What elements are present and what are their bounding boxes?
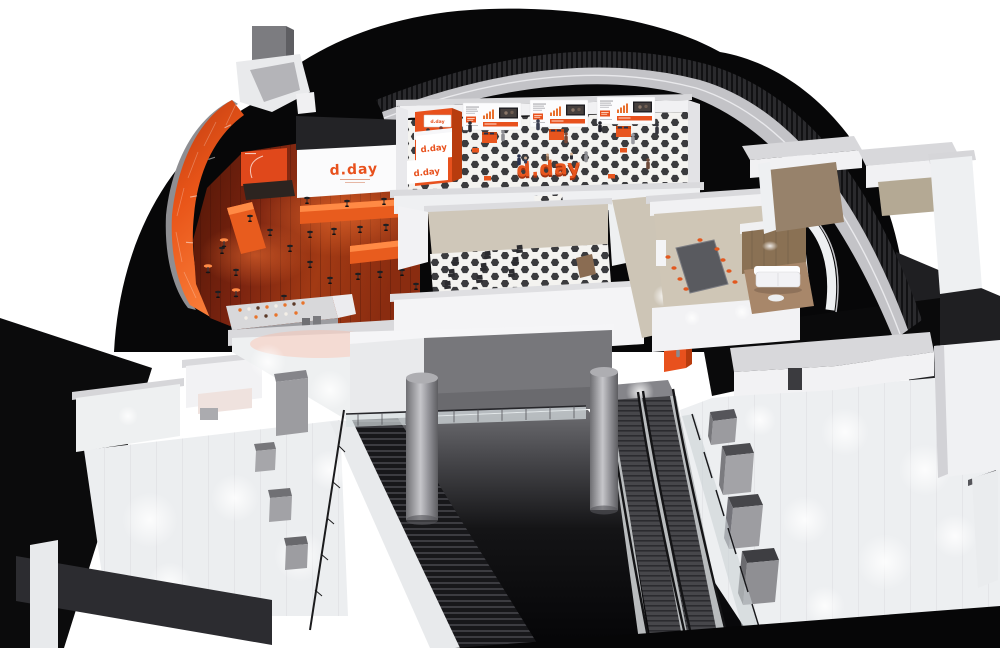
hall-left-wall: [396, 106, 408, 202]
seminar-left-wall: [398, 206, 428, 270]
coffee-table: [768, 295, 784, 302]
white-sofa: [754, 266, 802, 294]
credenza: [656, 240, 666, 266]
scene-svg: d.day: [0, 0, 1000, 648]
roof-duct: [236, 26, 316, 114]
presentation-screen: d.day: [296, 116, 412, 198]
right-room-door: [788, 368, 802, 390]
upper-right-brown-floor: [768, 162, 844, 232]
floorplan-render: d.day: [0, 0, 1000, 648]
screen-caption-line: [340, 179, 370, 180]
booth-panels: [463, 97, 655, 143]
screen-caption-line2: [345, 182, 365, 183]
reception-monitor-logo: d.day: [430, 119, 444, 125]
hall-right-wall: [688, 100, 700, 196]
lower-level: [16, 324, 1000, 648]
dday-letter-seating: d.day d.day: [516, 153, 582, 184]
walkway-pillar: [276, 378, 308, 436]
reception-tower: d.day d.day d.day: [407, 108, 462, 186]
screen-logo: d.day: [329, 161, 378, 179]
hanging-sign: [241, 148, 295, 200]
